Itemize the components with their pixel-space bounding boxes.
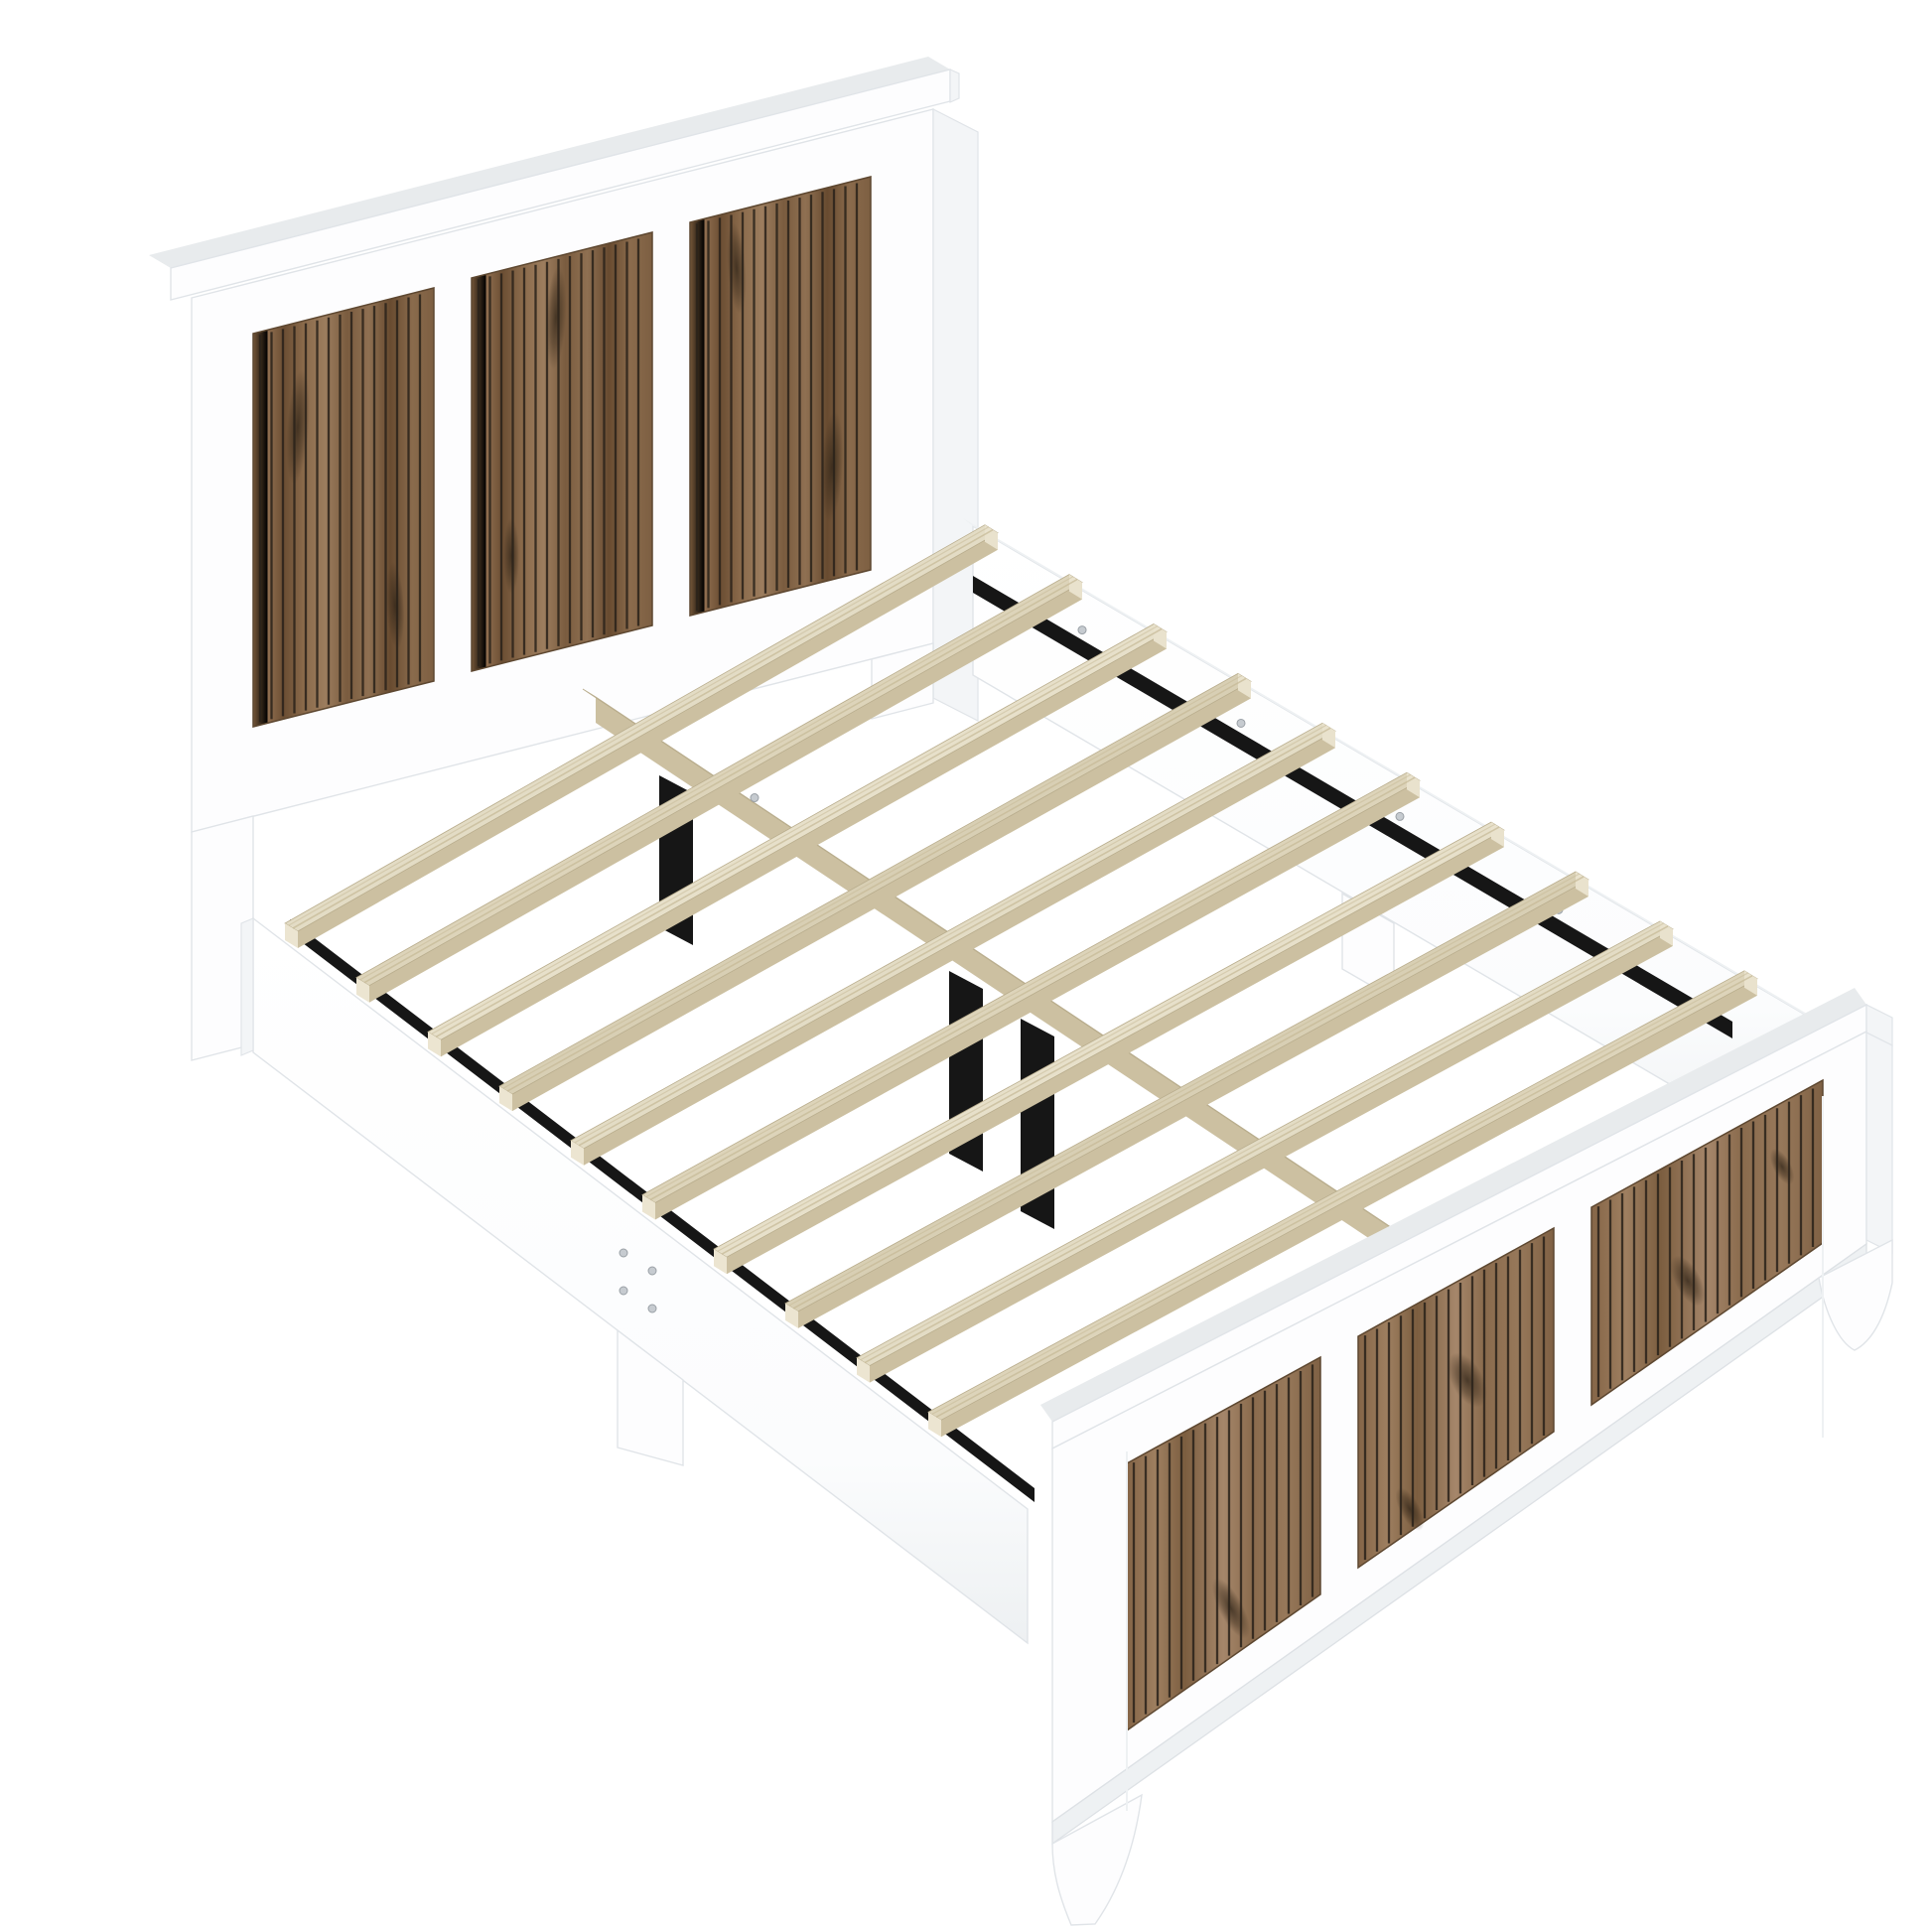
- screw: [1396, 812, 1404, 820]
- wood-panel-face: [253, 288, 434, 727]
- screw: [1237, 719, 1245, 727]
- headboard-cap-right-lip: [950, 69, 959, 102]
- bed-slat: [714, 822, 1504, 1274]
- product-image-canvas: Isometric render of a white platform bed…: [0, 0, 1932, 1932]
- screw: [620, 1249, 627, 1257]
- headboard-panel-right: [690, 177, 871, 616]
- headboard-right-post-side-face: [933, 109, 978, 721]
- wood-panel-face: [690, 177, 871, 616]
- screw: [751, 794, 759, 802]
- screw: [620, 1287, 627, 1295]
- left-rail-end-face: [241, 918, 253, 1055]
- footboard-right-post-side-face: [1866, 1033, 1892, 1253]
- headboard-panel-middle: [472, 232, 652, 671]
- screw: [648, 1267, 656, 1275]
- wood-knot: [503, 518, 519, 594]
- headboard-panel-left: [253, 288, 434, 727]
- bed-product-render: Isometric render of a white platform bed…: [0, 0, 1932, 1932]
- screw: [648, 1305, 656, 1312]
- screw: [1078, 626, 1086, 634]
